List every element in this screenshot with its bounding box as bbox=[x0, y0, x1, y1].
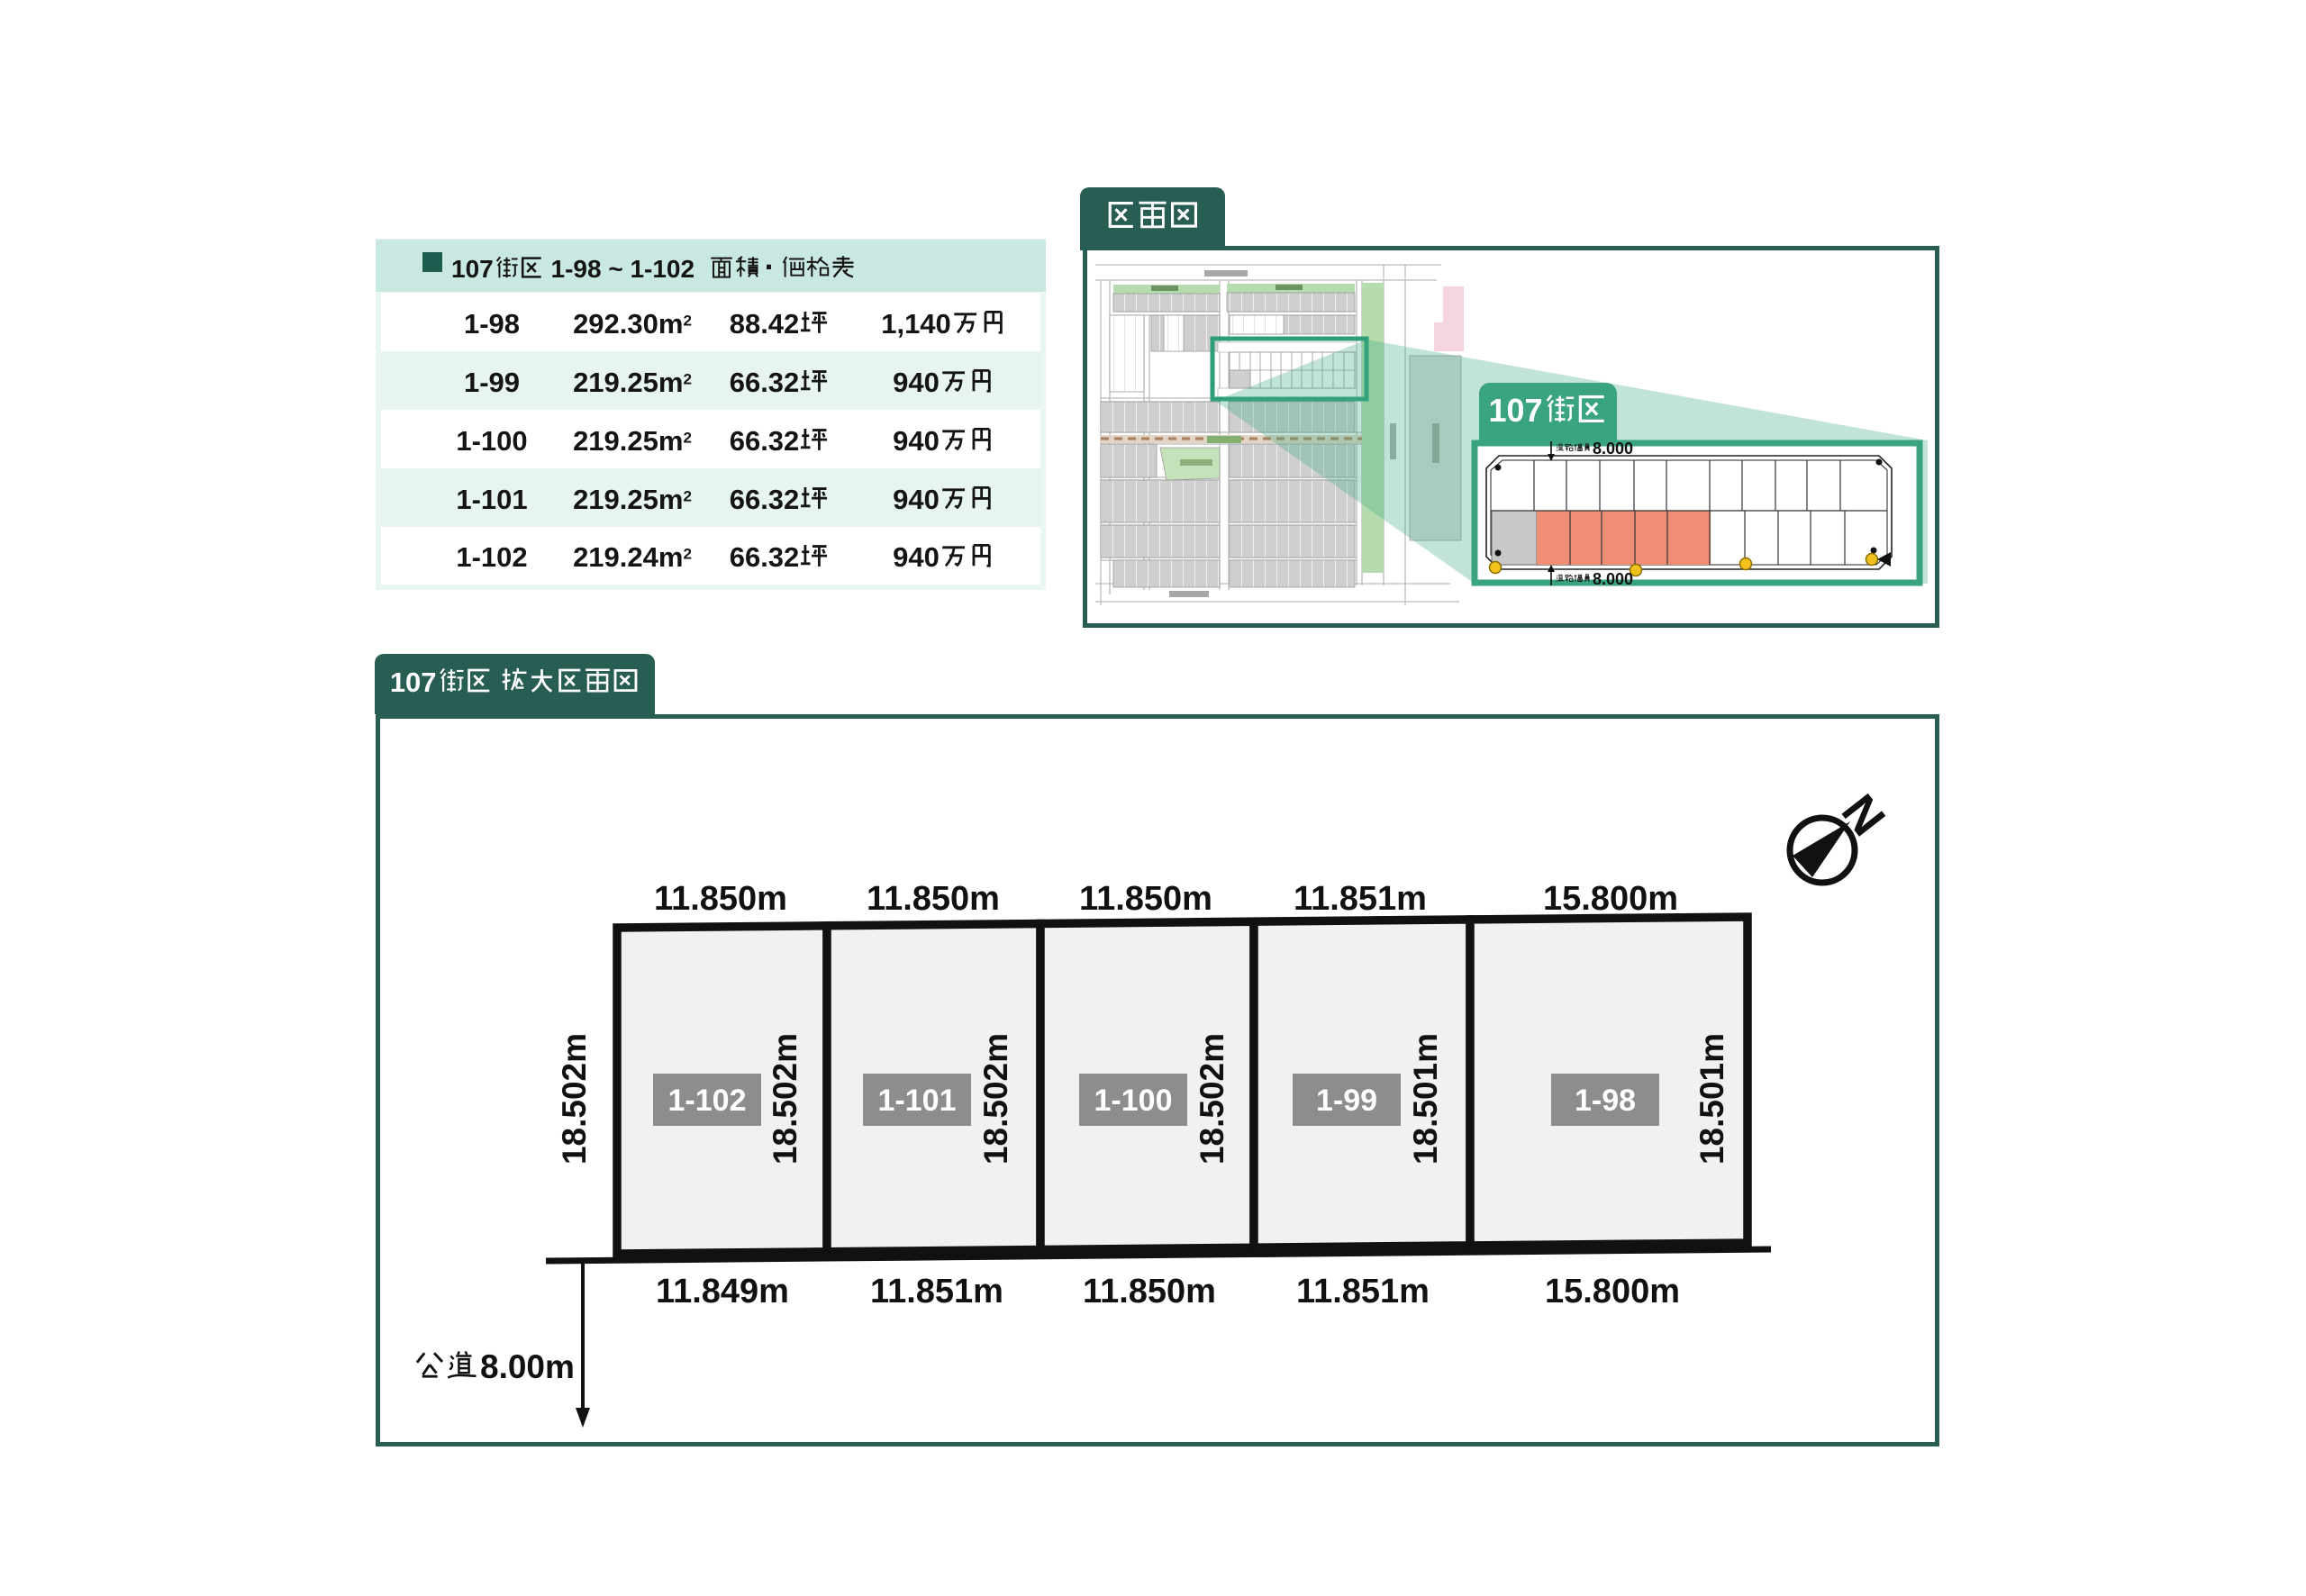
svg-text:15.800m: 15.800m bbox=[1545, 1273, 1680, 1310]
svg-text:8.000: 8.000 bbox=[1593, 570, 1633, 588]
svg-text:18.502m: 18.502m bbox=[977, 1033, 1014, 1165]
svg-text:1-102: 1-102 bbox=[668, 1084, 747, 1118]
svg-text:1-100: 1-100 bbox=[1094, 1084, 1173, 1118]
svg-text:11.850m: 11.850m bbox=[1083, 1273, 1216, 1310]
svg-text:18.501m: 18.501m bbox=[1407, 1033, 1444, 1165]
svg-text:11.850m: 11.850m bbox=[867, 880, 1000, 918]
svg-text:11.850m: 11.850m bbox=[1079, 880, 1212, 918]
svg-text:18.501m: 18.501m bbox=[1693, 1033, 1730, 1165]
svg-text:8.00m: 8.00m bbox=[480, 1348, 575, 1385]
svg-text:18.502m: 18.502m bbox=[556, 1033, 593, 1165]
svg-text:1-101: 1-101 bbox=[878, 1084, 957, 1118]
svg-text:11.850m: 11.850m bbox=[654, 880, 787, 918]
svg-text:8.000: 8.000 bbox=[1593, 440, 1633, 458]
svg-text:18.502m: 18.502m bbox=[767, 1033, 803, 1165]
svg-text:1-99: 1-99 bbox=[1316, 1084, 1377, 1118]
svg-text:N: N bbox=[1831, 784, 1895, 846]
svg-text:11.851m: 11.851m bbox=[1296, 1273, 1430, 1310]
svg-text:11.851m: 11.851m bbox=[870, 1273, 1003, 1310]
svg-text:18.502m: 18.502m bbox=[1194, 1033, 1230, 1165]
svg-text:11.851m: 11.851m bbox=[1294, 880, 1427, 918]
svg-text:15.800m: 15.800m bbox=[1543, 880, 1678, 918]
svg-text:1-98: 1-98 bbox=[1575, 1084, 1636, 1118]
svg-text:11.849m: 11.849m bbox=[656, 1273, 789, 1310]
